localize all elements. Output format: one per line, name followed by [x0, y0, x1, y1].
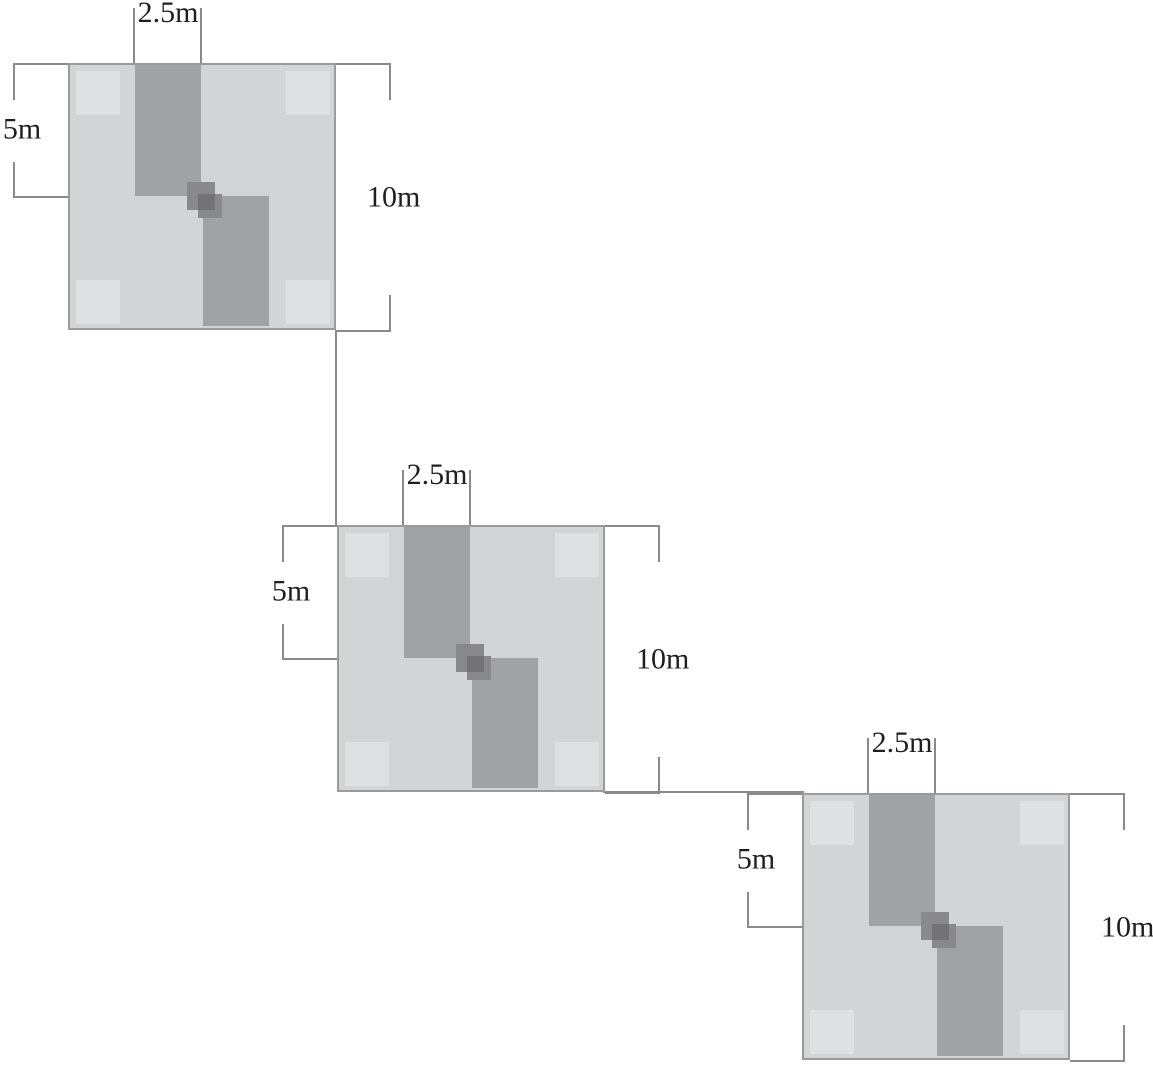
- left-dim-bracket-upper: [747, 793, 802, 830]
- strip-width-tick-left: [402, 470, 404, 525]
- left-dim-bracket-upper: [13, 63, 68, 100]
- corner-subplot-top-left: [810, 801, 854, 845]
- strip-width-label: 2.5m: [138, 0, 199, 29]
- corner-subplot-top-right: [555, 533, 599, 577]
- plot-boundary: [337, 525, 605, 792]
- quadrat-plot-2: 2.5m 5m 10m: [337, 525, 605, 792]
- strip-width-label: 2.5m: [407, 459, 468, 491]
- quadrat-plot-3: 2.5m 5m 10m: [802, 793, 1070, 1060]
- strip-width-tick-right: [934, 738, 936, 793]
- half-side-label: 5m: [272, 575, 310, 607]
- left-dim-bracket-lower: [747, 892, 802, 928]
- corner-subplot-top-right: [1020, 801, 1064, 845]
- right-dim-bracket-lower: [605, 757, 660, 794]
- upper-transect-strip: [135, 65, 201, 196]
- connector-line-vertical: [335, 330, 337, 527]
- corner-subplot-bottom-right: [286, 280, 330, 324]
- center-subquadrat-overlap: [932, 924, 949, 940]
- strip-width-label: 2.5m: [872, 727, 933, 759]
- right-dim-bracket-lower: [1070, 1025, 1125, 1062]
- strip-width-tick-left: [867, 738, 869, 793]
- left-dim-bracket-lower: [282, 624, 337, 660]
- right-dim-bracket-upper: [605, 525, 660, 562]
- corner-subplot-bottom-left: [345, 742, 389, 786]
- side-length-label: 10m: [367, 181, 420, 213]
- strip-width-tick-left: [133, 8, 135, 63]
- left-dim-bracket-upper: [282, 525, 337, 562]
- corner-subplot-top-right: [286, 71, 330, 115]
- corner-subplot-top-left: [76, 71, 120, 115]
- corner-subplot-bottom-right: [555, 742, 599, 786]
- center-subquadrat-overlap: [467, 656, 484, 672]
- quadrat-layout-diagram: 2.5m 5m 10m 2.5m 5m 10m: [0, 0, 1153, 1065]
- upper-transect-strip: [404, 527, 470, 658]
- plot-boundary: [802, 793, 1070, 1060]
- side-length-label: 10m: [1101, 911, 1153, 943]
- center-subquadrat-overlap: [198, 194, 215, 210]
- right-dim-bracket-upper: [336, 63, 391, 100]
- quadrat-plot-1: 2.5m 5m 10m: [68, 63, 336, 330]
- plot-boundary: [68, 63, 336, 330]
- left-dim-bracket-lower: [13, 162, 68, 198]
- right-dim-bracket-lower: [336, 295, 391, 332]
- half-side-label: 5m: [737, 843, 775, 875]
- corner-subplot-bottom-right: [1020, 1010, 1064, 1054]
- corner-subplot-bottom-left: [76, 280, 120, 324]
- right-dim-bracket-upper: [1070, 793, 1125, 830]
- corner-subplot-top-left: [345, 533, 389, 577]
- strip-width-tick-right: [469, 470, 471, 525]
- strip-width-tick-right: [200, 8, 202, 63]
- upper-transect-strip: [869, 795, 935, 926]
- half-side-label: 5m: [3, 113, 41, 145]
- corner-subplot-bottom-left: [810, 1010, 854, 1054]
- side-length-label: 10m: [636, 643, 689, 675]
